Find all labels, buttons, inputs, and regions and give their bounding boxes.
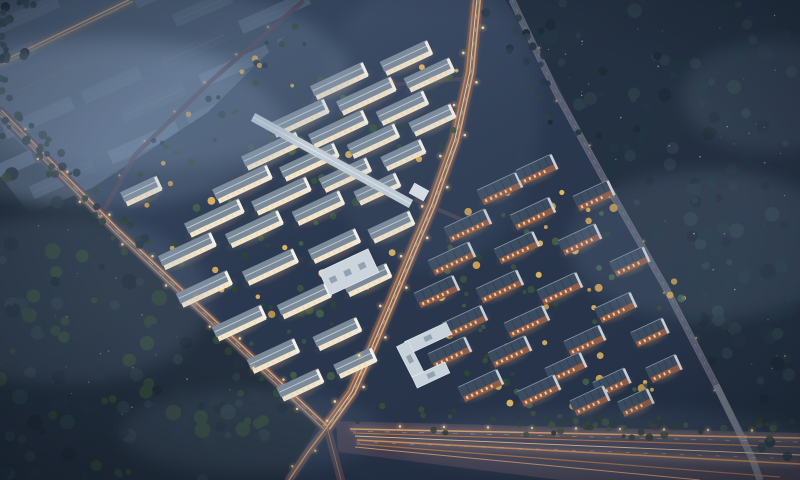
vignette bbox=[0, 0, 800, 480]
aerial-night-rendering bbox=[0, 0, 800, 480]
rendering-canvas bbox=[0, 0, 800, 480]
